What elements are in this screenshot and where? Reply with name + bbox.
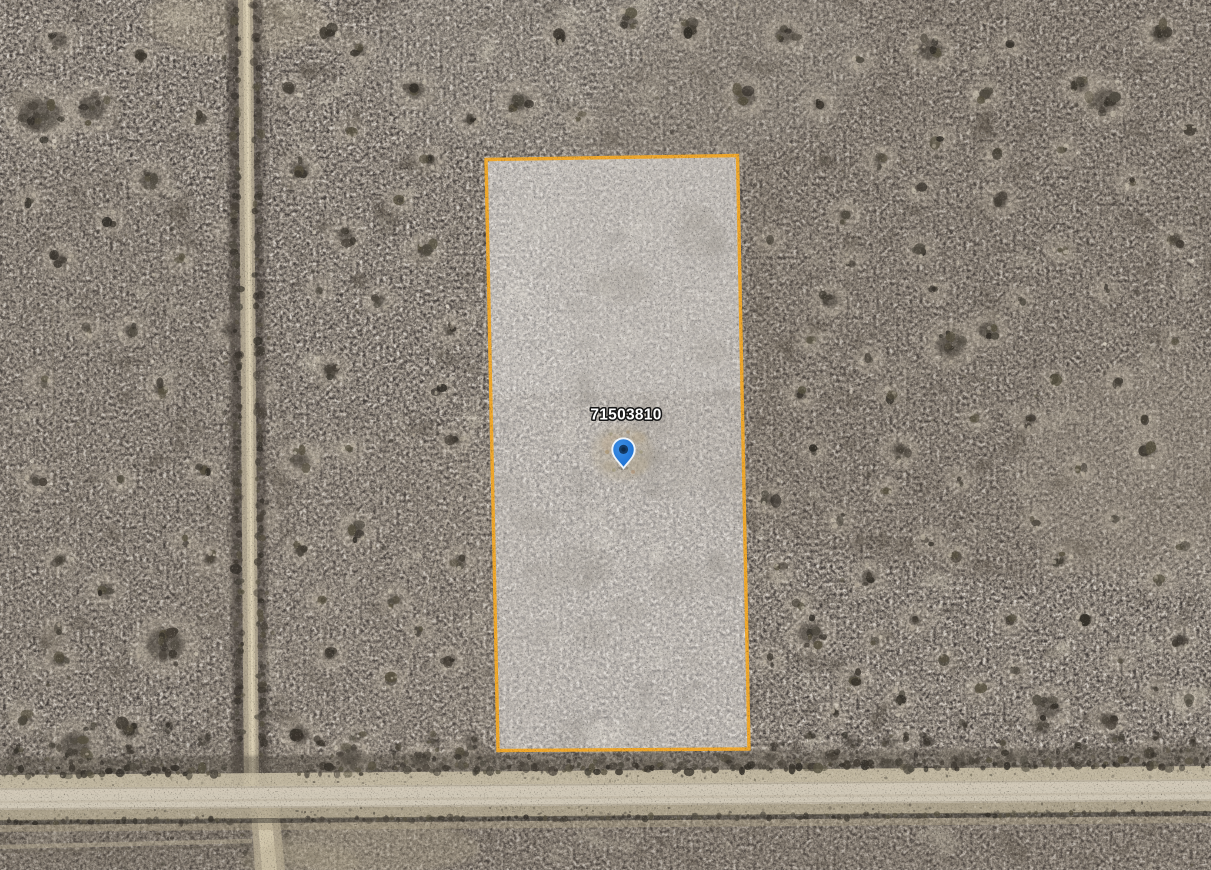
svg-text:71503810: 71503810 — [590, 407, 661, 424]
